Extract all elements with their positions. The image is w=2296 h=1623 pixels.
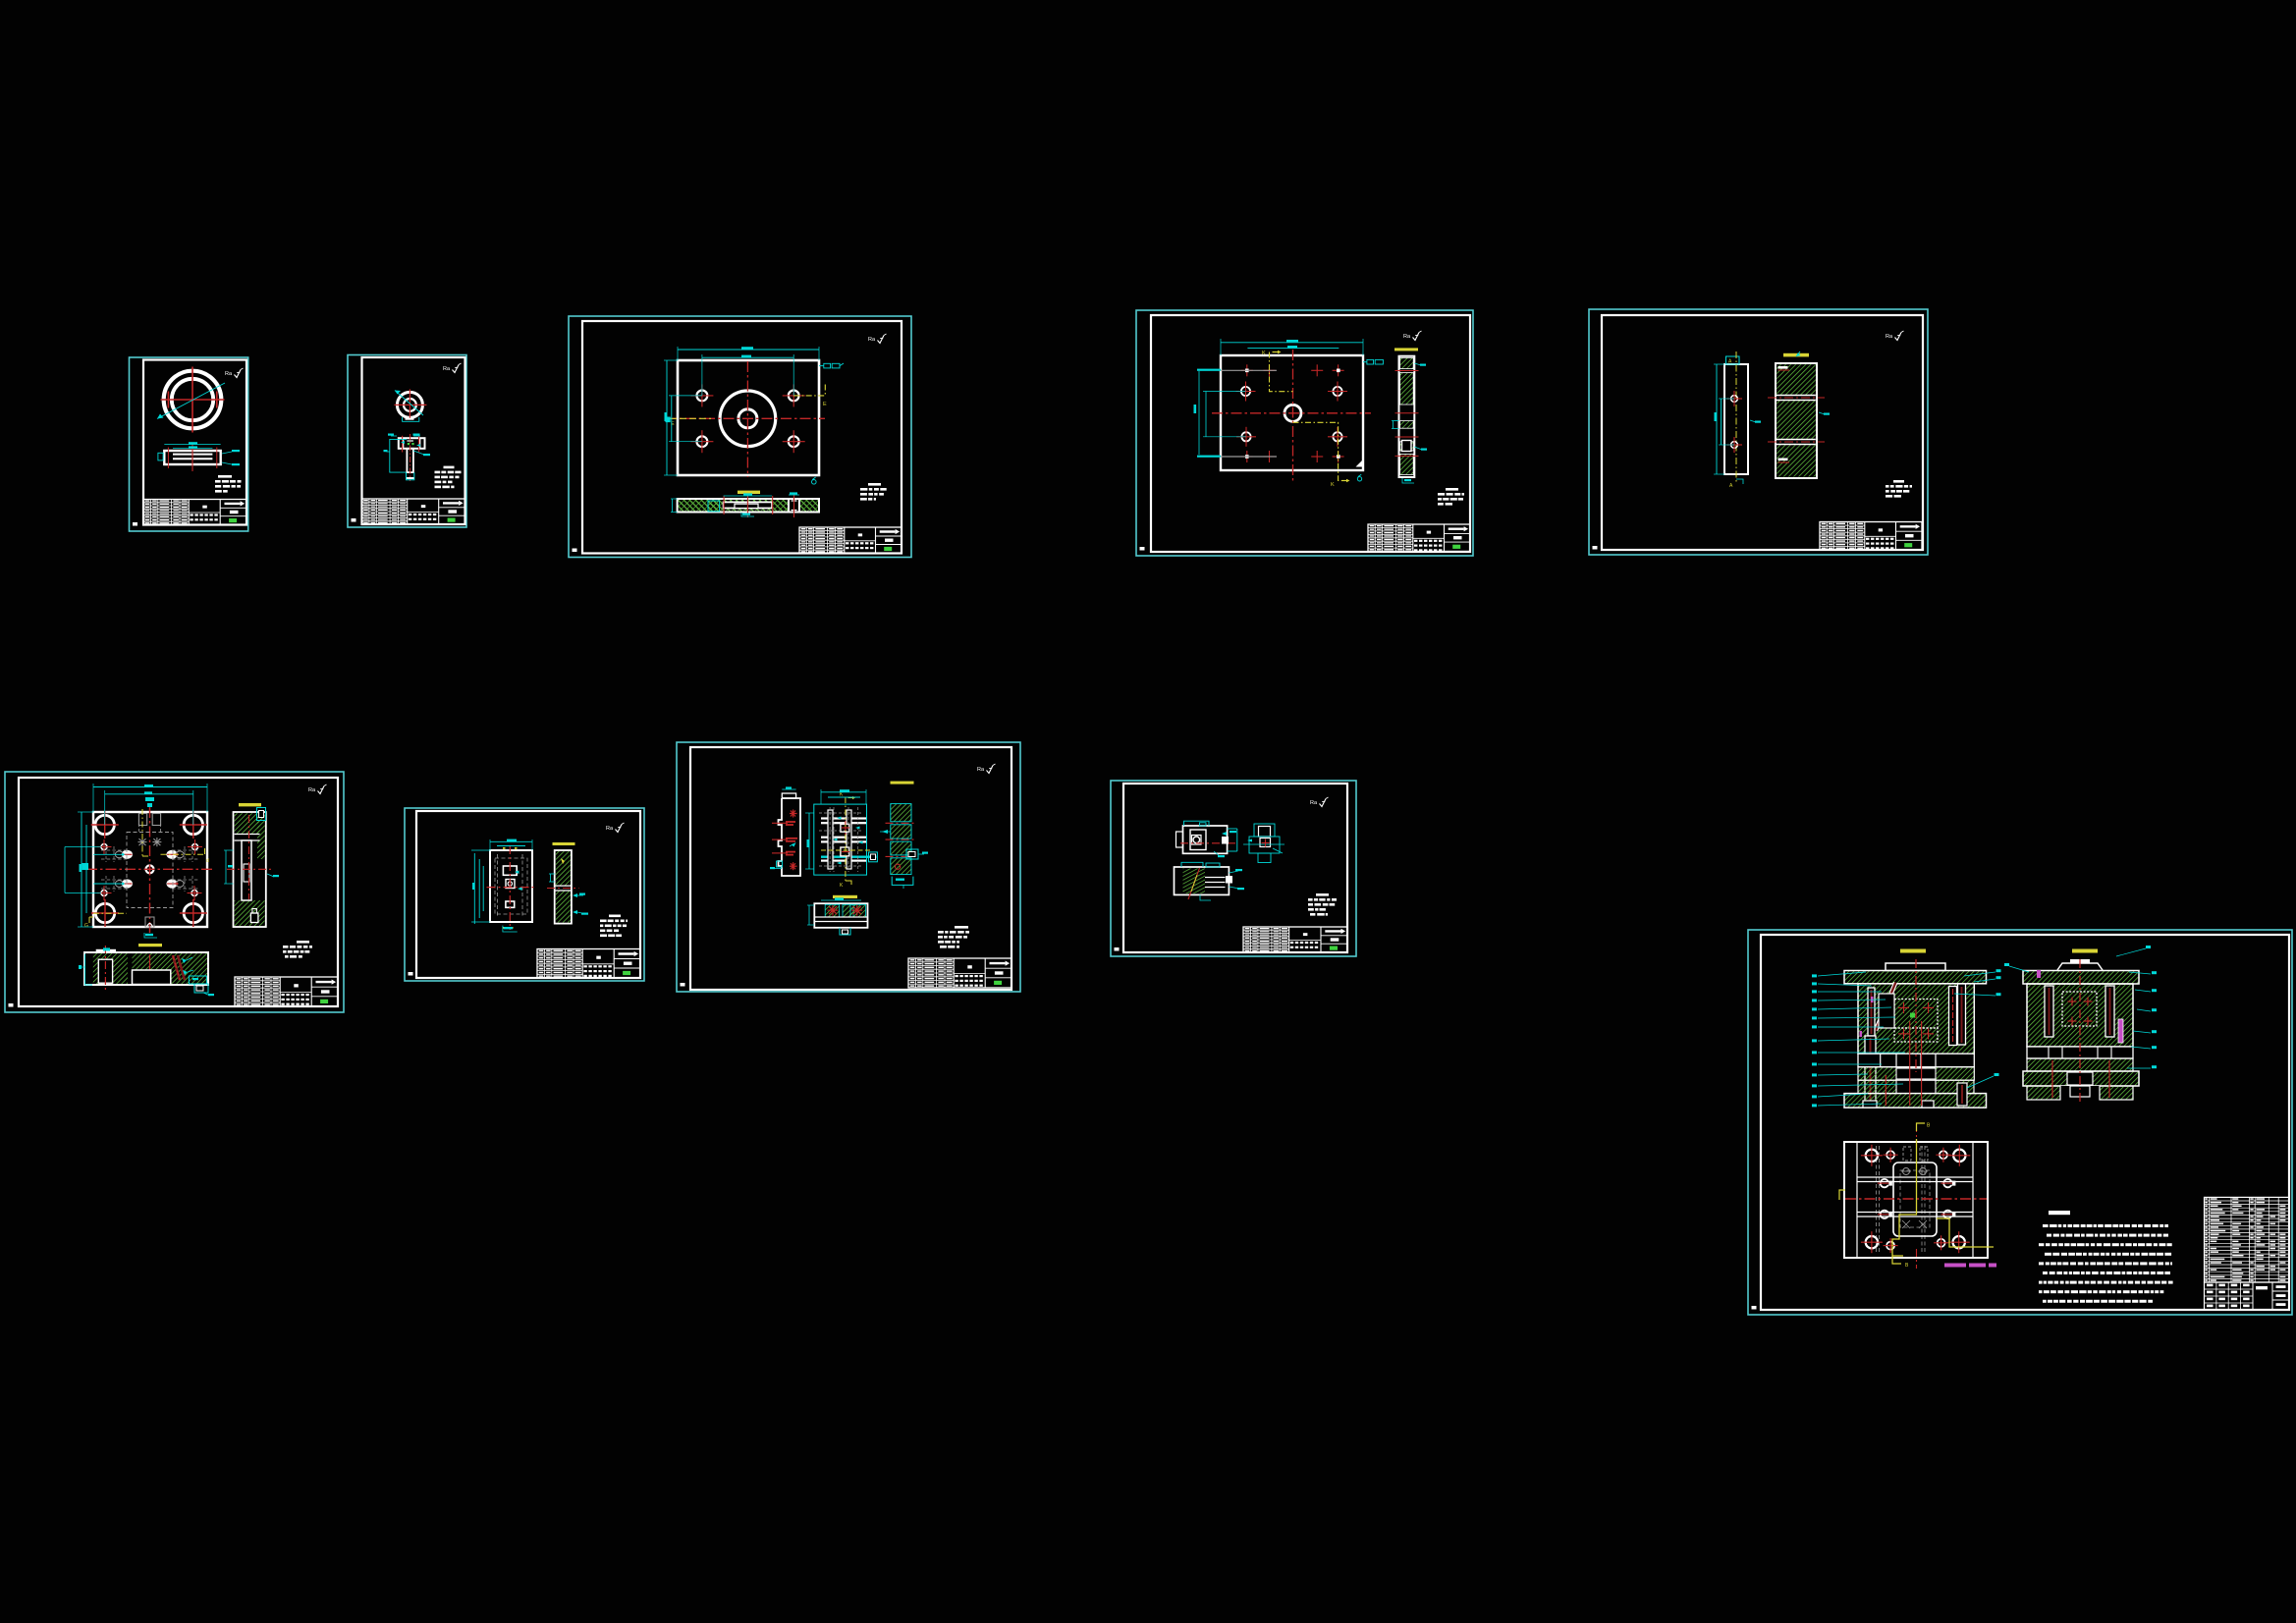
svg-text:Ra: Ra [606,826,614,832]
svg-text:B: B [1905,1263,1909,1269]
svg-text:B: B [1927,1123,1931,1129]
svg-text:Ra: Ra [977,767,985,773]
svg-text:d: d [206,858,209,864]
svg-text:Ra: Ra [225,371,233,377]
svg-text:Ra: Ra [308,787,316,793]
svg-text:Ra: Ra [1310,800,1318,806]
svg-text:K: K [840,883,844,889]
svg-text:E: E [823,402,827,407]
svg-text:K: K [1331,482,1335,488]
svg-text:Ra: Ra [868,337,876,343]
svg-text:Ra: Ra [1403,334,1411,340]
svg-text:Ra: Ra [443,366,451,372]
svg-text:G: G [84,923,88,929]
svg-text:Ra: Ra [1886,334,1893,340]
svg-text:A: A [1729,483,1733,489]
svg-text:K: K [1262,351,1266,356]
